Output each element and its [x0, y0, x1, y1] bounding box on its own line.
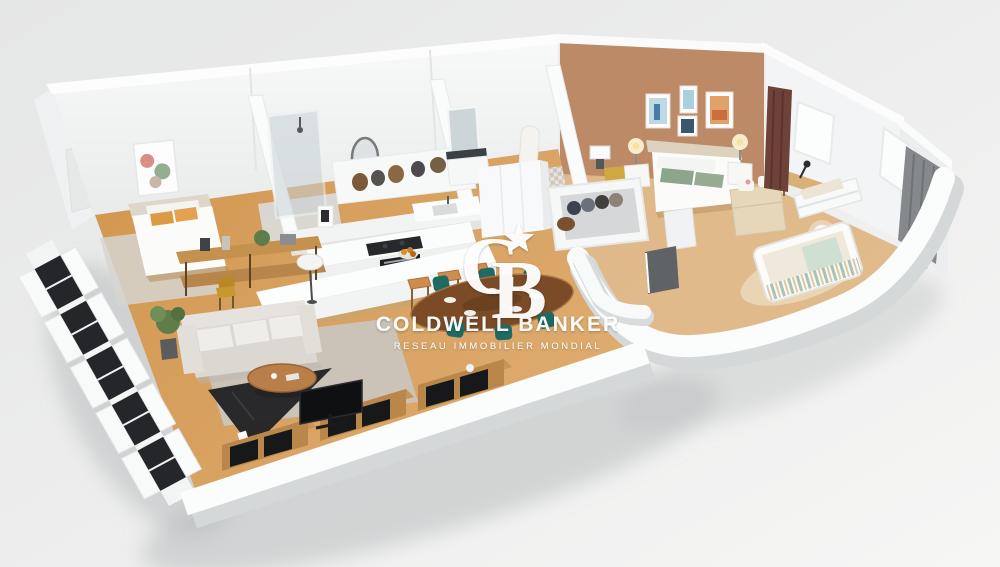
console-vase [466, 364, 474, 372]
desk-lamp-head [804, 161, 811, 168]
maroon-curtain [764, 86, 792, 192]
lamp-shade [297, 254, 323, 270]
bench-body [730, 184, 786, 236]
sofa-cushion [268, 314, 304, 340]
brand-tagline: RESEAU IMMOBILIER MONDIAL [394, 341, 603, 352]
shower-head-icon [297, 127, 303, 133]
art-print [681, 119, 694, 133]
gallery-frames [646, 86, 733, 136]
shelf-box [222, 236, 230, 250]
logo-letter-c: C [460, 220, 519, 311]
brand-wordmark: COLDWELL BANKER [376, 313, 620, 336]
sofa-cushion [196, 325, 234, 352]
clothes [609, 193, 623, 207]
open-wardrobe [548, 178, 648, 250]
plant-pot [160, 338, 178, 360]
bag [388, 165, 404, 183]
monitor-screen [590, 146, 610, 159]
basket-item [746, 180, 751, 185]
bag [371, 170, 385, 186]
hall-wall-stub [664, 208, 696, 250]
burner [400, 241, 405, 246]
sofa-cushion [232, 319, 270, 346]
fruit [401, 249, 407, 255]
monitor-stand [596, 159, 604, 169]
lamp-base [307, 300, 317, 304]
floor-plan-render: B C COLDWELL BANKER RESEAU IMMOBILIER MO… [0, 0, 1000, 567]
plant-foliage [171, 307, 185, 321]
plant-foliage [150, 306, 166, 322]
pillow-sage [660, 168, 694, 185]
clothes [567, 201, 581, 215]
shelf-books [280, 234, 296, 245]
lamp-bulb [633, 143, 640, 150]
vanity-mirror [448, 107, 479, 153]
art-detail [654, 104, 660, 120]
leather-bag [557, 217, 575, 231]
entry-door-panel [645, 246, 679, 294]
fruit [410, 251, 416, 257]
shelf-plant [254, 230, 270, 246]
bag [430, 157, 446, 173]
wall-art [133, 140, 178, 196]
lamp-bulb [737, 139, 744, 146]
clothes [595, 195, 609, 209]
floor-plan-canvas: B C COLDWELL BANKER RESEAU IMMOBILIER MO… [0, 0, 1000, 567]
art-detail [712, 110, 727, 120]
bag [411, 161, 425, 177]
shower-glass [268, 110, 326, 218]
clothes [581, 198, 595, 212]
coffee-machine-front [321, 210, 329, 222]
plate [444, 297, 456, 303]
bag [352, 173, 368, 191]
burner [383, 244, 388, 249]
art-print [683, 90, 694, 109]
cup [271, 373, 277, 379]
shelf-box [200, 238, 210, 251]
table-top [248, 364, 316, 392]
